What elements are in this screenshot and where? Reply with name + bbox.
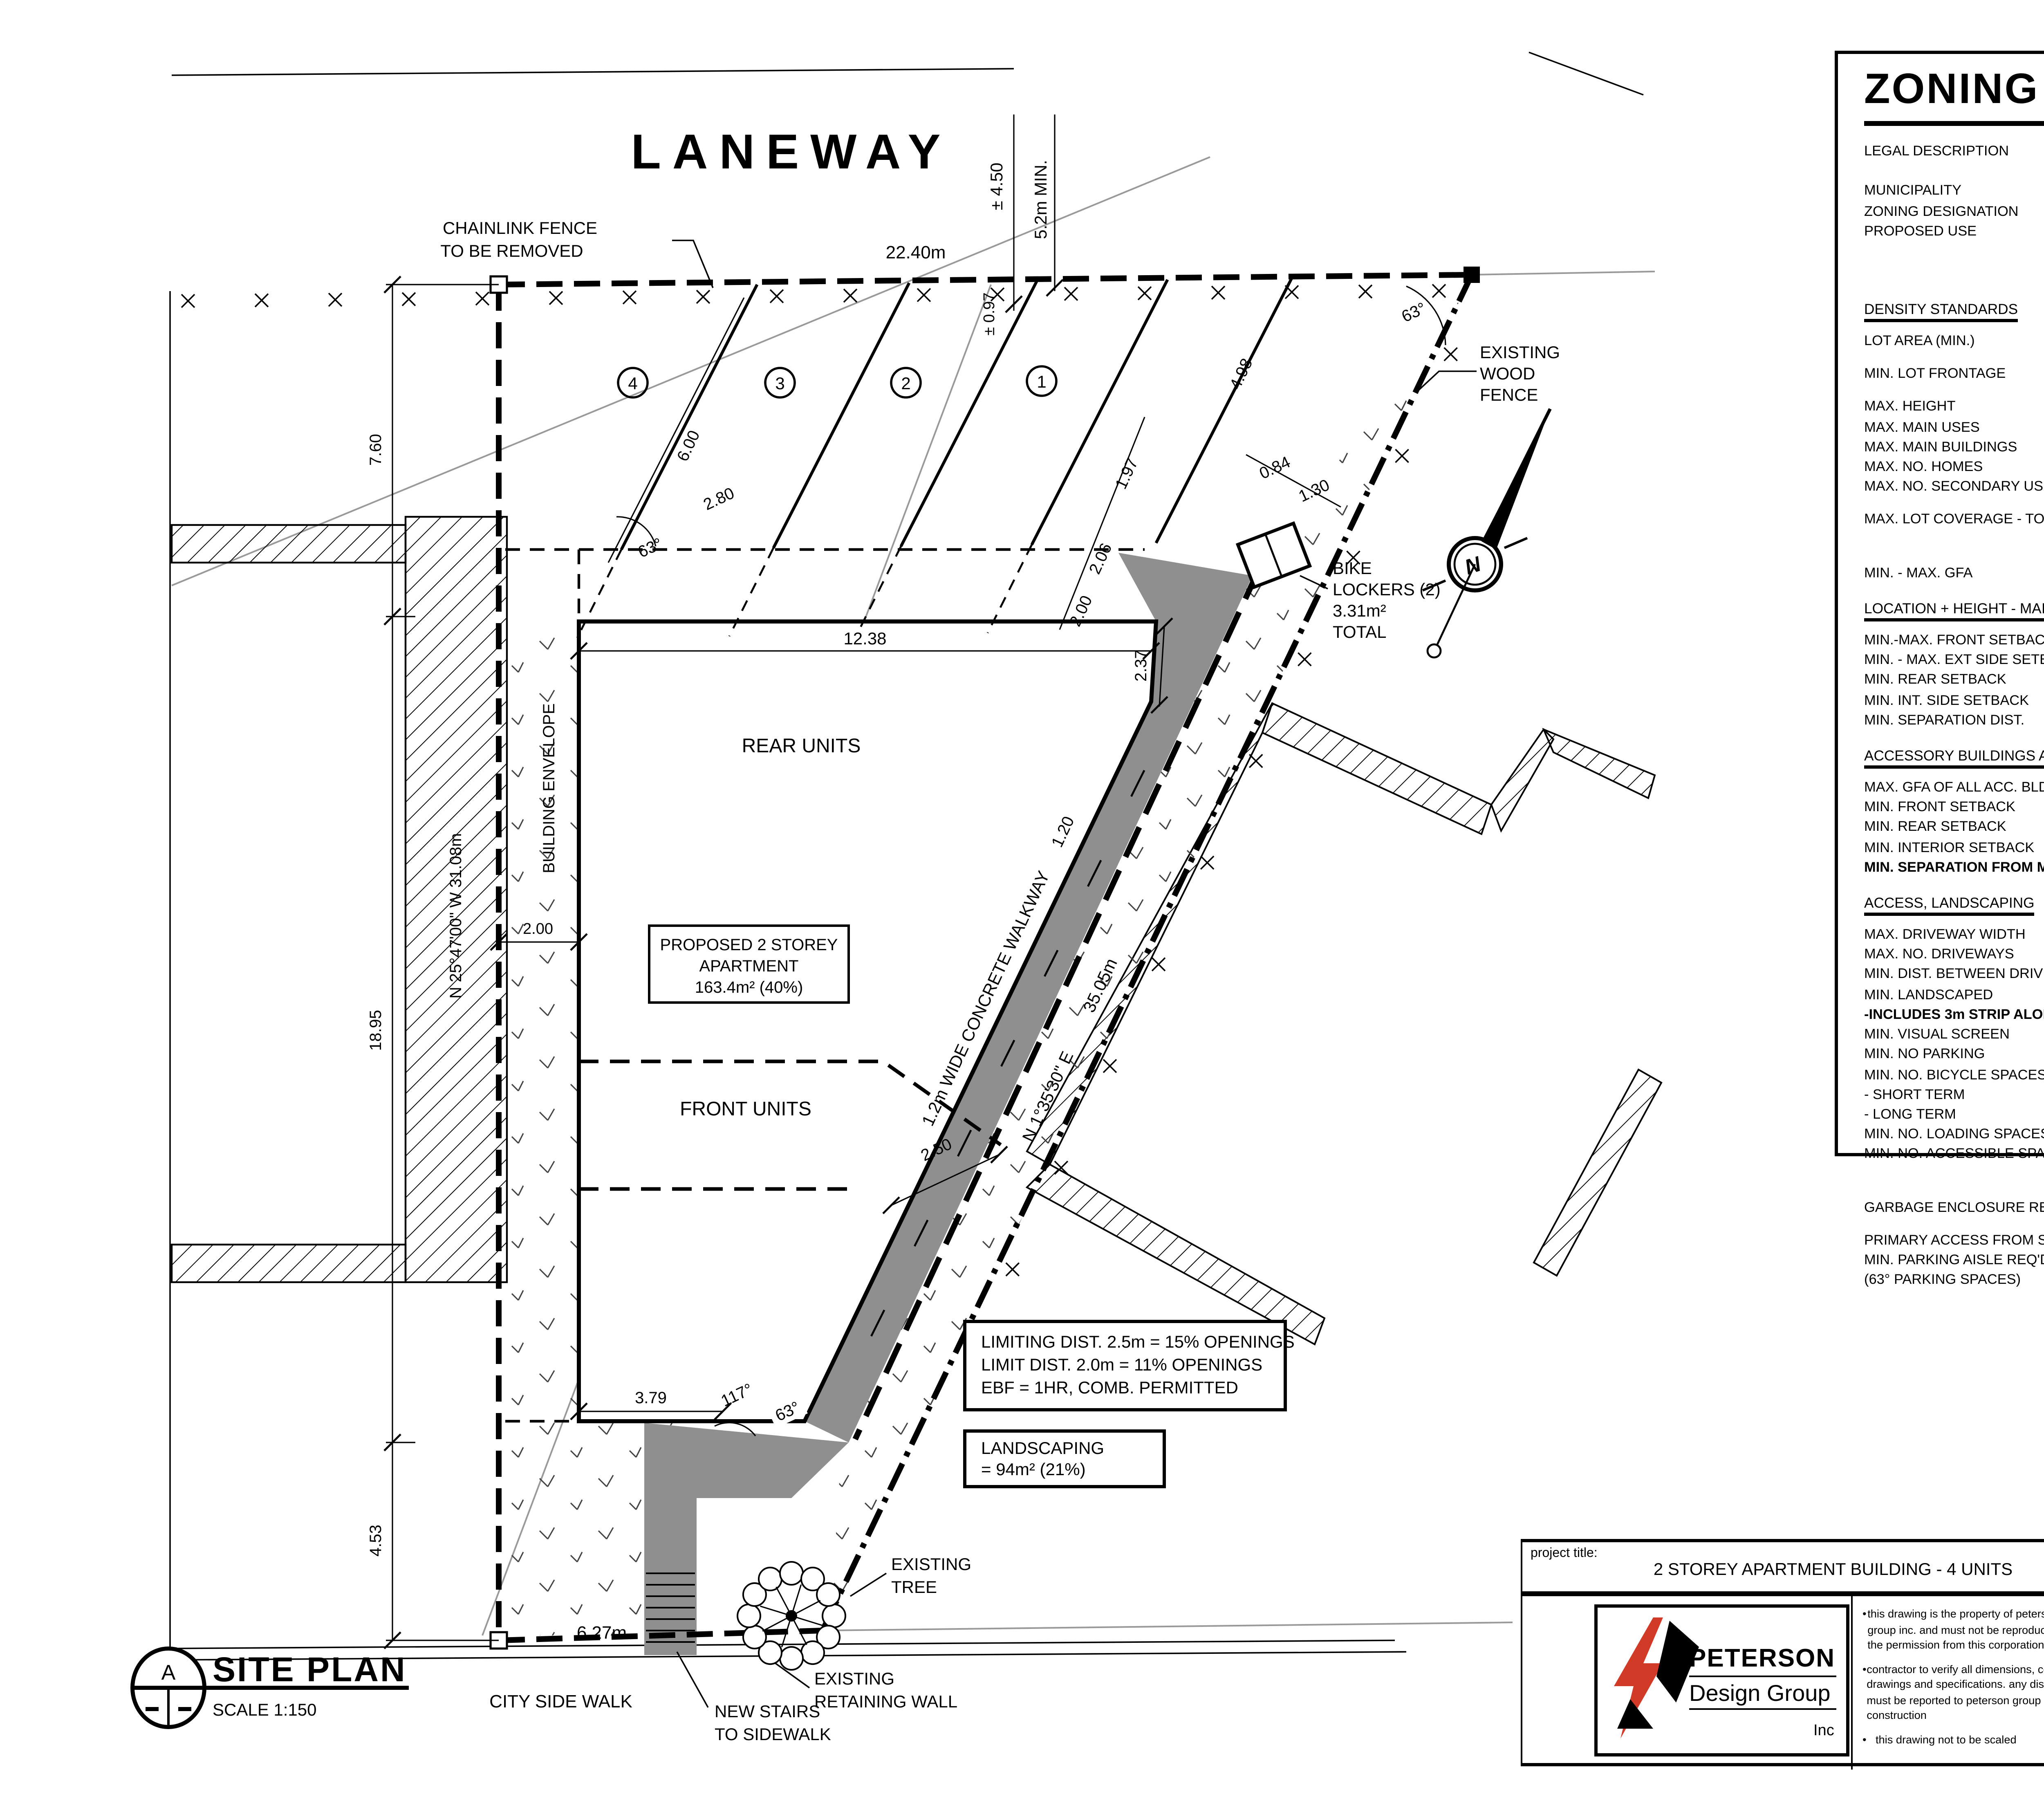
zoning-row: (< 5 SPACES REQ'D ON LOT) [1864,1164,2044,1184]
zoning-row: MIN.-MAX. FRONT SETBACK4.5m - 10.0m4.5 m [1864,630,2044,650]
plan-label: 2.00 [523,920,553,938]
plan-label: 3.31m² [1333,601,1386,620]
zoning-row: GARBAGE ENCLOSURE REQ'D< 6 HOMES = NONO [1864,1197,2044,1217]
plan-label: 163.4m² (40%) [695,978,803,996]
plan-label: 12.38 [843,629,886,648]
zoning-row: MIN. DIST. BETWEEN DRIVEWAYS6.0mN/A [1864,964,2044,984]
existing-tree [737,1562,845,1670]
zoning-row: MIN. LOT FRONTAGE18.0m FOR 4 HOMES6.27 m… [1864,363,2044,384]
zoning-row: - SHORT TERM4 / PUBLIC ENTRANCEN/A [1864,1084,2044,1104]
zoning-row: MAX. HEIGHT10.0m<10m [1864,397,2044,417]
zoning-row: PRIMARY ACCESS FROM STREETYESNOVARIANCE … [1864,1230,2044,1250]
plan-label: 3.79 [635,1389,667,1407]
zoning-row: MIN. VISUAL SCREENNO MIN.. [1864,1024,2044,1044]
zoning-row: MAX. NO. SECONDARY USES1 PER LOT0 [1864,476,2044,496]
zoning-info-row: MUNICIPALITYTHUNDER BAY [1864,181,2044,201]
divider [1851,1596,1853,1770]
zoning-row: MIN. SEPARATION DIST.N/AN/A [1864,709,2044,729]
plan-label: BIKE [1333,559,1372,578]
plan-label: 2.80 [701,484,737,514]
plan-label: 5.2m MIN. [1031,160,1050,239]
zoning-row: MAX. NO. DRIVEWAYS10 [1864,944,2044,964]
zoning-row: MAX. MAIN USES1 PER LOT1 [1864,417,2044,437]
plan-label: EBF = 1HR, COMB. PERMITTED [981,1378,1238,1397]
plan-label: TO BE REMOVED [440,241,583,260]
project-title-label: project title: [1531,1546,1598,1560]
zoning-section-title: DENSITY STANDARDS [1864,301,2018,322]
project-title: 2 STOREY APARTMENT BUILDING - 4 UNITS [1571,1560,2044,1580]
site-plan-drawing: LANEWAYCHAINLINK FENCETO BE REMOVED22.40… [0,0,1835,1799]
zoning-info-rows: LEGAL DESCRIPTIONPART OF LOTS 28, 29 AND… [1864,141,2044,240]
zoning-row: MAX. MAIN BUILDINGS1 PER LOT1 [1864,436,2044,456]
plan-label: LIMITING DIST. 2.5m = 15% OPENINGS [981,1332,1295,1351]
zoning-table: ZONING 642 OLIVER RD LEGAL DESCRIPTIONPA… [1835,51,2044,1156]
plan-label: = 94m² (21%) [981,1460,1086,1479]
title-block-note: •this drawing is the property of peterso… [1862,1608,2044,1654]
plan-label: 63° [1399,299,1429,325]
zoning-row: MIN. INT. SIDE SETBACK1.5m2.0 m [1864,690,2044,710]
plan-label: 2.37 [1132,650,1150,682]
plan-label: 4 [628,374,637,393]
zoning-section-title: ACCESSORY BUILDINGS AND STRUCTURES [1864,747,2044,769]
zoning-info-row: LEGAL DESCRIPTIONPART OF LOTS 28, 29 AND… [1864,141,2044,181]
plan-label: 22.40m [886,242,946,262]
plan-label: RETAINING WALL [814,1692,957,1711]
plan-label: 6.00 [674,428,704,464]
zoning-row: MIN. REAR SETBACK6.0m7.0 m [1864,670,2044,690]
plan-label: LOCKERS (2) [1333,580,1441,599]
peterson-logo: PETERSON Design Group Inc [1598,1608,1846,1752]
zoning-row: MIN. NO PARKING1 / HOME = 44 [1864,1044,2044,1064]
plan-label: A [161,1661,176,1685]
plan-label: LANEWAY [631,124,952,179]
plan-label: ± 0.97 [981,292,998,335]
zoning-row: MIN. INTERIOR SETBACK0.6m (>20m FROM FRO… [1864,837,2044,857]
zoning-row: MIN. FRONT SETBACK1.5m > MAIN BLDG SETBA… [1864,797,2044,817]
plan-label: LIMIT DIST. 2.0m = 11% OPENINGS [981,1355,1262,1374]
zoning-row: MAX. DRIVEWAY WIDTH6.0mN/A [1864,924,2044,944]
plan-label: 2.06 [1086,541,1116,577]
plan-label: 6.27m [577,1623,627,1643]
plan-label: EXISTING [814,1669,894,1688]
plan-label: LANDSCAPING [981,1438,1104,1458]
title-block-note: •contractor to verify all dimensions, co… [1862,1662,2044,1725]
plan-label: BUILDING ENVELOPE [540,703,558,873]
plan-label: 18.95 [367,1010,385,1051]
zoning-row: -INCLUDES 3m STRIP ALONG STREET [1864,1004,2044,1024]
zoning-info-row: PROPOSED USE4 UNIT APARTMENT BUILDING [1864,220,2044,240]
plan-label: SCALE 1:150 [213,1700,317,1719]
logo-line3: Inc [1813,1722,1834,1739]
plan-label: 4.53 [367,1525,385,1557]
plan-label: FENCE [1480,385,1538,404]
zoning-row: MAX. NO. HOMES6 PER LOT4 [1864,456,2044,476]
zoning-row: LOT AREA (MIN.)540 m² FOR 4 HOMES445.5 m… [1864,330,2044,350]
plan-label: ± 4.50 [987,163,1006,210]
plan-label: TO SIDEWALK [715,1725,831,1744]
plan-label: PROPOSED 2 STOREY [660,936,838,954]
zoning-row: MIN. PARKING AISLE REQ'D5.2m5.2m [1864,1250,2044,1270]
zoning-info-row: ZONING DESIGNATIONUL - URBAN LOW-RISE [1864,200,2044,220]
zoning-row: MIN. REAR SETBACK0.6m4.98m [1864,817,2044,837]
logo-line2: Design Group [1689,1680,1831,1706]
plan-label: NEW STAIRS [715,1702,820,1721]
plan-label: 63° [635,534,665,561]
zoning-section-title: LOCATION + HEIGHT - MAIN BUILDINGS AND S… [1864,600,2044,621]
zoning-title: ZONING [1864,64,2039,113]
plan-label: 7.60 [367,434,385,466]
zoning-section-title: ACCESS, LANDSCAPING [1864,895,2035,916]
zoning-row: MIN. NO. LOADING SPACES0 REQ'D0 [1864,1124,2044,1144]
zoning-row: MIN. NO. ACCESSIBLE SPACES00 [1864,1144,2044,1164]
plan-label: 1 [1037,372,1046,391]
plan-label: 2 [901,374,910,393]
zoning-row: MIN. NO. BICYCLE SPACES: [1864,1064,2044,1084]
plan-label: FRONT UNITS [680,1098,811,1120]
zoning-header-rule [1864,121,2044,126]
title-block: project title: 2 STOREY APARTMENT BUILDI… [1521,1539,2044,1766]
zoning-row: MIN. - MAX. EXT SIDE SETBACK3.6m - NO MA… [1864,650,2044,670]
north-arrow [1423,409,1550,657]
zoning-row: MIN. - MAX. GFANO MIN. - NO MAX. [1864,562,2044,582]
plan-label: WOOD [1480,364,1535,383]
zoning-header: ZONING 642 OLIVER RD [1864,64,2044,119]
plan-label: 3 [775,374,784,393]
plan-label: SITE PLAN [213,1650,407,1689]
plan-label: TREE [891,1577,937,1597]
plan-label: CHAINLINK FENCE [443,218,597,238]
company-logo-box: PETERSON Design Group Inc [1594,1604,1849,1756]
plan-label: EXISTING [1480,343,1560,362]
zoning-sections: DENSITY STANDARDSLOT AREA (MIN.)540 m² F… [1864,301,2044,1290]
plan-label: EXISTING [891,1554,971,1574]
plan-label: TOTAL [1333,622,1386,642]
plan-label: 4.98 [1226,356,1256,392]
zoning-row: MAX. LOT COVERAGE - TOTAL40% LOT AREA (1… [1864,509,2044,550]
drawing-sheet: LANEWAYCHAINLINK FENCETO BE REMOVED22.40… [0,0,2044,1799]
plan-label: REAR UNITS [742,735,861,757]
title-block-notes: •this drawing is the property of peterso… [1862,1608,2044,1757]
zoning-row: MIN. LANDSCAPED20% LOT AREA (89.1m² MIN)… [1864,984,2044,1004]
survey-monument [1464,267,1480,283]
zoning-column-headers: REQUIRED PROVIDED [1864,262,2044,283]
zoning-row: (63° PARKING SPACES) [1864,1270,2044,1290]
title-block-note: •this drawing not to be scaled [1862,1733,2044,1748]
zoning-row: MIN. SEPARATION FROM MAIN BLDG.2.0m2.0m [1864,857,2044,877]
plan-label: N 25°47'00" W 31.08m [447,833,465,999]
title-block-top-row: project title: 2 STOREY APARTMENT BUILDI… [1522,1542,2044,1596]
zoning-row: - LONG TERM22 (BIKE LOCKERS) [1864,1104,2044,1124]
plan-label: CITY SIDE WALK [489,1691,632,1712]
logo-line1: PETERSON [1689,1644,1835,1672]
zoning-row: MAX. GFA OF ALL ACC. BLDGS.100m²3.31m² [1864,777,2044,797]
plan-label: 1.97 [1112,455,1142,492]
plan-label: APARTMENT [699,957,799,975]
